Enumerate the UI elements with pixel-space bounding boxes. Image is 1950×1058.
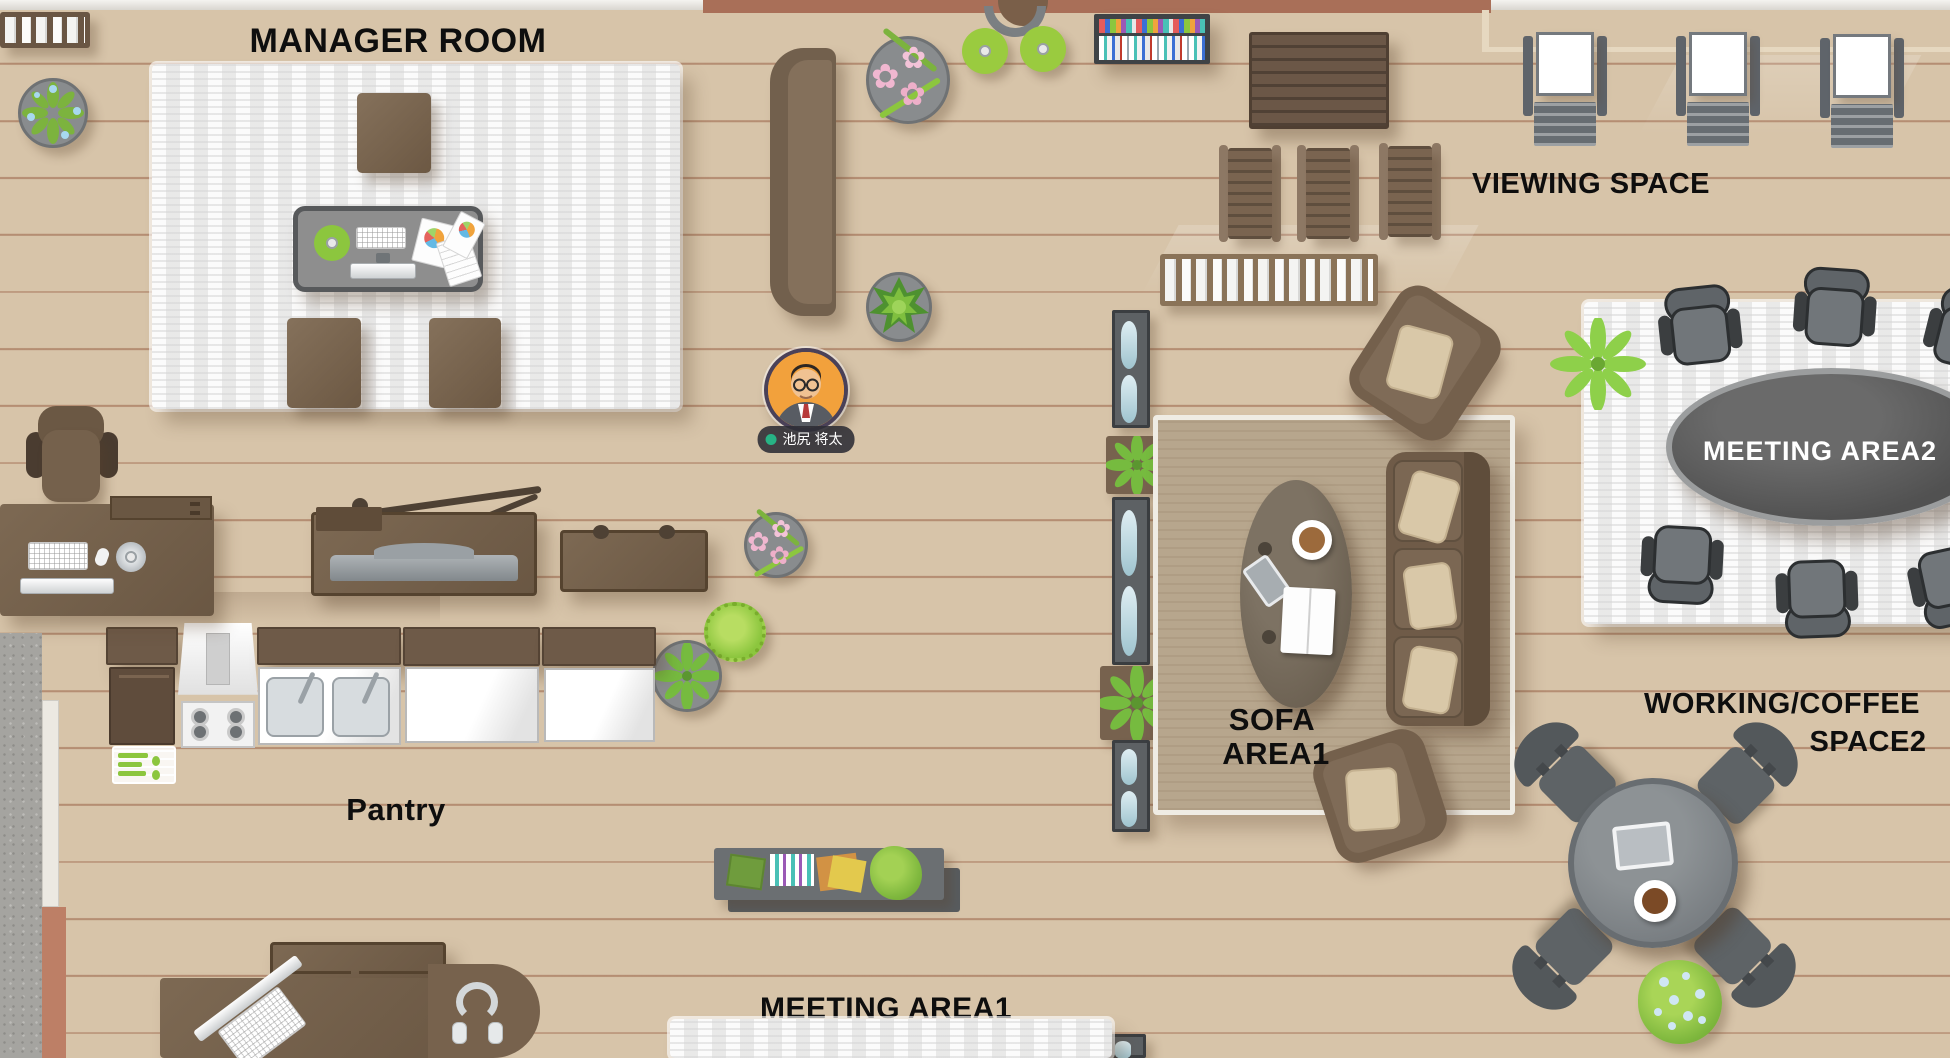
coffee-table[interactable]	[1240, 480, 1352, 708]
white-pillar	[42, 700, 59, 907]
stool	[287, 318, 361, 408]
user-avatar[interactable]	[764, 348, 848, 432]
viewing-chair	[1676, 30, 1760, 162]
knob	[593, 525, 609, 539]
succulent-icon	[869, 275, 929, 339]
bench-cushion	[788, 60, 832, 304]
wall-edge-corner	[1482, 10, 1489, 52]
desk-drawers	[110, 496, 212, 520]
green-box	[726, 854, 766, 891]
plant-blob	[870, 846, 922, 900]
three-seat-sofa	[1386, 452, 1490, 726]
working-coffee-label-line2: SPACE2	[1810, 726, 1927, 759]
bush-flowers-icon	[1638, 960, 1722, 1044]
coffee-cup-icon	[1634, 880, 1676, 922]
lily-flower-pot: ✿ ✿ ✿	[866, 36, 950, 124]
office-chair	[1778, 551, 1857, 640]
avatar-name-tag: 池尻 将太	[758, 426, 855, 453]
computer-desk	[0, 504, 214, 616]
deck-chair	[1297, 145, 1359, 242]
lily-flower-icon: ✿	[871, 57, 900, 97]
striped-books	[770, 854, 814, 886]
rack-top-row	[1099, 19, 1205, 33]
lily-flower-pot: ✿ ✿ ✿	[744, 512, 808, 578]
pillow	[1345, 767, 1401, 832]
headphone-ear	[488, 1022, 503, 1044]
succulent-pot	[866, 272, 932, 342]
color-book-rack	[1094, 14, 1210, 64]
dish-rack	[112, 746, 176, 784]
hood-vent	[206, 633, 230, 685]
palm-plant-pot	[652, 640, 722, 712]
top-wall-strip-salmon	[703, 0, 1491, 13]
deck-chair	[1379, 143, 1441, 240]
monitor-stand	[376, 253, 390, 263]
white-books-shelf	[1160, 254, 1378, 306]
viewing-chair	[1820, 32, 1904, 164]
standing-panel	[1112, 310, 1150, 428]
sink-counter	[258, 667, 401, 745]
office-chair	[1658, 282, 1743, 375]
plate-icon	[314, 225, 350, 261]
yellow-paper	[827, 855, 866, 892]
plant-fronds-icon	[21, 81, 85, 145]
manager-desk	[293, 206, 483, 292]
concrete-wall	[0, 633, 42, 1058]
kitchen-upper-cabinet	[257, 627, 401, 665]
manager-room-label: MANAGER ROOM	[250, 22, 547, 61]
coffee-cup-icon	[1292, 520, 1332, 560]
copier-tray-curve	[374, 543, 474, 559]
avatar-photo	[768, 352, 844, 428]
standing-panel	[1112, 497, 1150, 665]
kitchen-counter	[544, 668, 655, 742]
lily-flower-icon: ✿	[899, 75, 926, 113]
slatted-table	[1249, 32, 1389, 129]
office-floor-map[interactable]: MANAGER ROOM ✿ ✿ ✿	[0, 0, 1950, 1058]
keyboard-icon	[28, 542, 88, 570]
kitchen-upper-cabinet	[403, 627, 540, 666]
round-cafe-table[interactable]	[1568, 778, 1738, 948]
curved-bench	[770, 48, 836, 316]
keyboard-icon	[217, 986, 307, 1058]
open-book-icon	[1280, 587, 1335, 656]
working-coffee-label-line1: WORKING/COFFEE	[1644, 688, 1920, 721]
meeting-area2-label: MEETING AREA2	[1703, 436, 1937, 467]
office-chair	[1642, 516, 1722, 606]
pillow	[1402, 561, 1458, 631]
kitchen-counter	[405, 667, 539, 743]
pantry-label: Pantry	[346, 792, 445, 828]
avatar-name: 池尻 将太	[783, 429, 843, 449]
lily-flower-icon: ✿	[769, 541, 790, 571]
mouse-icon	[93, 546, 110, 567]
headphone-ear	[452, 1022, 467, 1044]
copier-station	[311, 512, 537, 596]
lily-flower-icon: ✿	[901, 41, 926, 76]
monitor-icon	[20, 578, 114, 594]
green-stool	[1020, 26, 1066, 72]
viewing-space-label: VIEWING SPACE	[1472, 168, 1710, 201]
standing-panel	[1106, 1034, 1146, 1058]
headphones-icon	[456, 982, 498, 1022]
rack-bottom-row	[1099, 36, 1205, 60]
workstation-desk	[160, 978, 484, 1058]
wall-bookshelf	[0, 12, 90, 48]
deck-chair	[1219, 145, 1281, 242]
desk-pod	[428, 964, 540, 1058]
palm-icon	[1550, 318, 1646, 410]
keyboard-icon	[356, 227, 406, 249]
tablet-icon	[1612, 821, 1674, 871]
sofa-area1-label-line1: SOFA	[1229, 702, 1315, 738]
range-hood	[178, 623, 258, 701]
office-chair	[1794, 265, 1876, 356]
display-bench	[714, 848, 944, 900]
kitchen-upper-cabinet	[106, 627, 178, 665]
refrigerator	[109, 667, 175, 745]
palm-icon	[655, 643, 719, 709]
lily-flower-icon: ✿	[771, 515, 791, 544]
viewing-chair	[1523, 30, 1607, 162]
meeting-area1-rug	[670, 1019, 1112, 1058]
sofa-area1-label-line2: AREA1	[1222, 736, 1330, 772]
chair-seat	[42, 430, 100, 502]
kitchen-upper-cabinet	[542, 627, 656, 666]
stool	[429, 318, 501, 408]
book-spines	[5, 17, 85, 43]
avatar-status-dot	[766, 434, 777, 445]
terracotta-wall	[42, 907, 66, 1058]
standing-panel	[1112, 740, 1150, 832]
potted-plant-blue-accents	[18, 78, 88, 148]
palm-plant	[1550, 318, 1646, 410]
green-stool	[962, 28, 1008, 74]
cd-disc-icon	[116, 542, 146, 572]
gas-stove	[181, 701, 255, 748]
desk-chair	[28, 406, 116, 508]
sideboard	[560, 530, 708, 592]
lily-flower-icon: ✿	[747, 527, 770, 558]
stool	[357, 93, 431, 173]
flowering-bush	[1638, 960, 1722, 1044]
table-knob	[1262, 630, 1276, 644]
copier-lid	[316, 507, 382, 531]
knob	[659, 525, 675, 539]
monitor-icon	[350, 263, 416, 279]
